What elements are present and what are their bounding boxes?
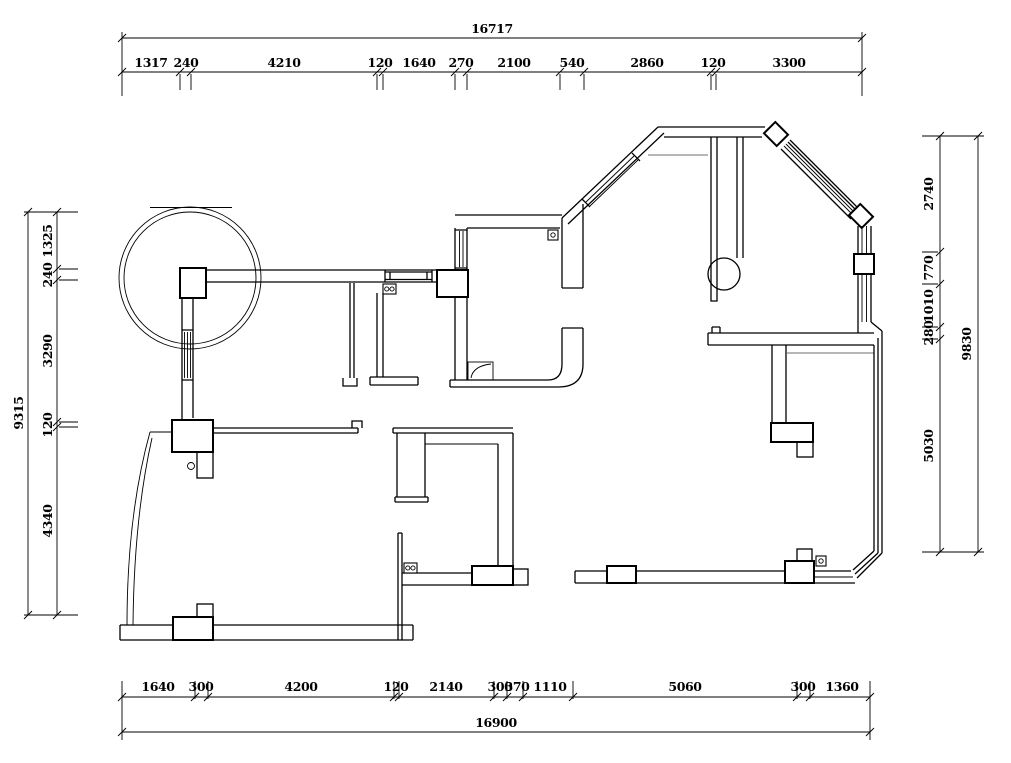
dim-label: 120	[384, 679, 410, 694]
living-room-walls	[120, 420, 413, 640]
column	[437, 270, 468, 297]
dim-label: 300	[189, 679, 215, 694]
wall-stub	[197, 604, 213, 617]
column	[472, 566, 513, 585]
dim-label: 3300	[772, 55, 806, 70]
dim-label: 3290	[40, 334, 55, 368]
dim-label: 1110	[533, 679, 567, 694]
column	[607, 566, 636, 583]
point-marker	[188, 463, 195, 470]
dim-label: 1317	[134, 55, 167, 70]
dim-label: 16900	[475, 715, 517, 730]
dimension-chain-right: 2740 770 1010 280 5030 9830	[921, 132, 984, 556]
dimension-chain-left: 1325 240 3290 120 4340 9315	[11, 208, 78, 619]
dim-label: 370	[505, 679, 531, 694]
column	[173, 617, 213, 640]
wall-stub	[513, 569, 528, 585]
column	[785, 561, 814, 583]
dim-label: 2740	[921, 177, 936, 211]
wall-stub	[797, 549, 812, 561]
corner-column	[849, 204, 873, 228]
dim-label: 5030	[921, 429, 936, 463]
dim-label: 16717	[471, 21, 513, 36]
dim-label: 2100	[497, 55, 531, 70]
dim-label: 120	[40, 412, 55, 438]
bathroom-walls	[450, 204, 583, 387]
closet-walls	[393, 428, 528, 585]
column	[180, 268, 206, 298]
duct-and-column	[708, 137, 743, 301]
dimension-chain-top: 16717 1317 240 4210 120 1640 270 2100 54…	[118, 21, 866, 96]
dim-label: 300	[791, 679, 817, 694]
dining-room-walls	[575, 327, 882, 583]
wall-block	[771, 423, 813, 442]
dim-label: 120	[368, 55, 394, 70]
column	[854, 254, 874, 274]
shower-pan	[468, 362, 493, 380]
dimension-chain-bottom: 1640 300 4200 120 2140 300 370 1110 5060…	[118, 679, 874, 740]
dim-label: 4200	[284, 679, 318, 694]
vent-symbol	[548, 230, 558, 240]
column	[172, 420, 213, 452]
dim-label: 770	[921, 255, 936, 281]
dim-label: 2860	[630, 55, 664, 70]
dim-label: 4210	[267, 55, 301, 70]
dim-label: 1325	[40, 224, 55, 257]
dim-label: 4340	[40, 504, 55, 538]
dim-label: 1010	[921, 289, 936, 323]
dim-label: 540	[560, 55, 586, 70]
vent-symbol	[816, 556, 826, 566]
dim-label: 5060	[668, 679, 702, 694]
floor-plan-sheet: 16717 1317 240 4210 120 1640 270 2100 54…	[0, 0, 1011, 763]
dim-label: 270	[449, 55, 475, 70]
east-window-wall	[854, 226, 882, 333]
dim-label: 1360	[825, 679, 859, 694]
dim-label: 1640	[402, 55, 436, 70]
round-column	[708, 258, 740, 290]
dim-label: 9315	[11, 396, 26, 429]
corner-column	[764, 122, 788, 146]
bedroom-walls	[180, 268, 468, 433]
floor-plan-drawing: 16717 1317 240 4210 120 1640 270 2100 54…	[0, 0, 1011, 763]
outlet-symbol	[383, 284, 396, 294]
dim-label: 120	[701, 55, 727, 70]
dim-label: 9830	[959, 327, 974, 361]
dim-label: 240	[174, 55, 200, 70]
plan-walls	[119, 122, 882, 640]
wall-stub	[197, 452, 213, 478]
dim-label: 2140	[429, 679, 463, 694]
wall-stub	[797, 442, 813, 457]
dim-label: 240	[40, 262, 55, 288]
dim-label: 1640	[141, 679, 175, 694]
outlet-symbol	[404, 563, 417, 573]
dim-label: 280	[921, 320, 936, 346]
